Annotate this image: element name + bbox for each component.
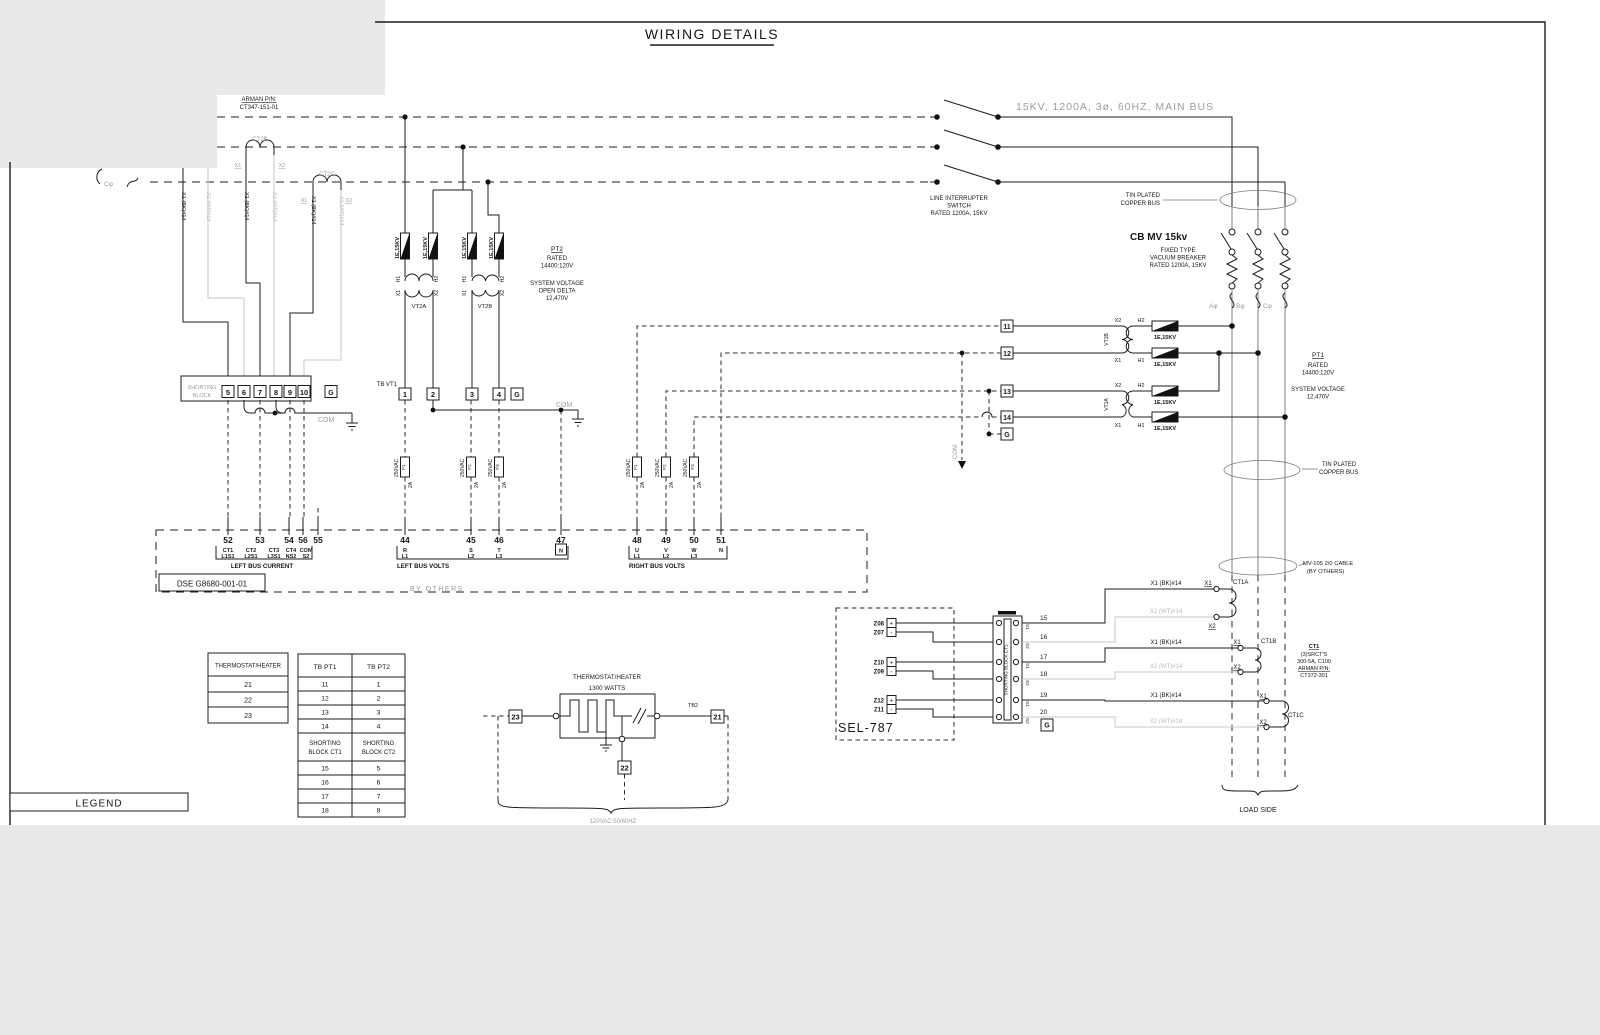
sb-term-10: 10: [300, 388, 308, 397]
pt1-term-14: 14: [1003, 415, 1011, 422]
c-phase-label: Cφ: [104, 181, 113, 188]
sel-17: 17: [1040, 654, 1048, 661]
tin-plated-mid-2: COPPER BUS: [1319, 470, 1358, 476]
arman-pn-value: CT347-151-01: [240, 105, 279, 111]
th-term-23: 23: [511, 713, 519, 722]
f3r-vac: 250VAC: [683, 458, 689, 477]
tb-r5b: 5: [377, 766, 381, 773]
sel-minus-3: -: [891, 708, 893, 714]
sb-term-8: 8: [274, 388, 278, 397]
term-49: 49: [661, 535, 671, 545]
vt2b-x2: X2: [500, 290, 506, 296]
ct2c-label: CT2C: [319, 172, 335, 178]
left-bus-volts-title: LEFT BUS VOLTS: [397, 563, 449, 570]
tb-r7a: 17: [321, 794, 329, 801]
term-51: 51: [716, 535, 726, 545]
sel-ground: G: [1044, 723, 1050, 730]
dse-number: DSE G8680-001-01: [177, 580, 248, 589]
term-50: 50: [689, 535, 699, 545]
pt1-rated: RATED: [1308, 363, 1329, 369]
tb-r3b: 3: [377, 710, 381, 717]
sel-s2-3: S2: [1025, 718, 1030, 724]
pt2-fuse-3: 1E,15KV: [462, 237, 468, 259]
vt2b-x1: X1: [462, 290, 468, 296]
pt1-sys2: 12,470V: [1307, 395, 1329, 401]
sel-strip-label: SHORTING BLOCK CT1: [1004, 644, 1009, 695]
sb-term-7: 7: [258, 388, 262, 397]
f3r-name: F3: [690, 464, 695, 470]
vt1b-x1: X1: [1115, 358, 1122, 364]
ct2c-x1: X1: [301, 198, 308, 204]
sel-z12: Z12: [874, 699, 885, 705]
sel-minus-1: -: [891, 631, 893, 637]
term-56: 56: [298, 535, 308, 545]
lbv-l3: L3: [496, 554, 502, 560]
rbv-l2: L2: [663, 554, 669, 560]
vt2a-x1: X1: [396, 290, 402, 296]
thermostat-name: THERMOSTAT/HEATER: [573, 674, 642, 681]
sel-s1-3: S1: [1025, 701, 1030, 707]
f1r-name: F1: [633, 464, 638, 470]
f3l-vac: 250VAC: [488, 458, 494, 477]
gray-mask-top-left: [0, 0, 385, 95]
ct2b-x1: X1: [235, 163, 242, 169]
pt1-sys1: SYSTEM VOLTAGE: [1291, 387, 1345, 393]
tb-vt1-label: TB VT1: [377, 382, 398, 388]
tb-h1: TB PT1: [313, 664, 336, 671]
rbv-l3: L3: [691, 554, 697, 560]
shorting-block-label-2: BLOCK: [193, 393, 212, 399]
vt2a-x2: X2: [434, 290, 440, 296]
vt2a-label: VT2A: [412, 304, 427, 310]
pt2-sys1: SYSTEM VOLTAGE: [530, 281, 584, 287]
sel-s2-1: S2: [1025, 643, 1030, 649]
ct1c-x2: X2: [1259, 720, 1267, 726]
sel-z08: Z08: [874, 622, 885, 628]
sb-term-9: 9: [288, 388, 292, 397]
ct1c-x1: X1: [1259, 694, 1267, 700]
sel-z09: Z09: [874, 670, 885, 676]
pt2-fuse-2: 1E,15KV: [423, 237, 429, 259]
tb-sb2b: BLOCK CT2: [362, 750, 396, 756]
term-55: 55: [313, 535, 323, 545]
pt2-sys2: OPEN DELTA: [538, 289, 575, 295]
wiring-diagram: WIRING DETAILS ARMAN P/N: CT347-151-01 C…: [0, 0, 1600, 1035]
sel-19: 19: [1040, 692, 1048, 699]
tin-plated-top-2: COPPER BUS: [1121, 201, 1160, 207]
sel-plus-1: +: [890, 622, 894, 628]
vt2b-label: VT2B: [478, 304, 493, 310]
main-bus-label: 15KV, 1200A, 3ø, 60HZ, MAIN BUS: [1016, 101, 1214, 113]
wiring-details-page: WIRING DETAILS ARMAN P/N: CT347-151-01 C…: [0, 0, 1600, 1035]
vt2b-h2: H2: [500, 276, 506, 283]
f2r-name: F2: [662, 464, 667, 470]
f2r-amp: 2A: [669, 481, 675, 488]
left-bus-current-title: LEFT BUS CURRENT: [231, 563, 293, 570]
tb-r2a: 12: [321, 696, 329, 703]
gray-mask-bottom: [0, 825, 1600, 1035]
tb2-label: TB2: [688, 703, 698, 709]
tbvt1-2: 2: [431, 390, 435, 399]
tt-22: 22: [244, 698, 252, 705]
wire-label-wt-3: X2 (WT)#14: [338, 196, 344, 226]
tt-header: THERMOSTAT/HEATER: [215, 664, 282, 670]
tbvt1-g: G: [514, 392, 520, 399]
tb-pt-table: [298, 654, 405, 817]
term-47: 47: [556, 535, 566, 545]
right-bus-volts-title: RIGHT BUS VOLTS: [629, 563, 685, 570]
lbv-l1: L1: [402, 554, 408, 560]
pt1-name: PT1: [1312, 352, 1324, 359]
ctw-bk-3: X1 (BK)#14: [1150, 693, 1182, 699]
vt1a-x2: X2: [1115, 383, 1122, 389]
f2r-vac: 250VAC: [655, 458, 661, 477]
vt1a-h2: H2: [1137, 383, 1144, 389]
lbc-l3s1: L3S1: [267, 554, 280, 560]
tb-sb1b: BLOCK CT1: [308, 750, 342, 756]
ct2c-x2: X2: [346, 198, 353, 204]
vt2b-h1: H1: [462, 276, 468, 283]
cb-line-3: RATED 1200A, 15KV: [1150, 263, 1207, 269]
ctw-bk-1: X1 (BK)#14: [1150, 581, 1182, 587]
by-others-label: BY OTHERS: [410, 586, 464, 593]
lbc-s2: S2: [303, 554, 310, 560]
sel-s1-2: S1: [1025, 663, 1030, 669]
pt2-sys3: 12,470V: [546, 296, 568, 302]
tt-23: 23: [244, 713, 252, 720]
phase-c-label: Cφ: [1263, 303, 1272, 310]
vt2a-h2: H2: [434, 276, 440, 283]
tb-r6b: 6: [377, 780, 381, 787]
wire-label-bk-3: X1 (BK)#14: [310, 196, 316, 224]
shorting-block-label-1: SHORTING: [188, 385, 217, 391]
pt1-fuse-3: 1E,15KV: [1154, 400, 1176, 406]
lbc-ns2: NS2: [286, 554, 297, 560]
sel-s1-1: S1: [1025, 624, 1030, 630]
phase-b-label: Bφ: [1236, 303, 1245, 310]
tin-plated-mid-1: TIN PLATED: [1322, 462, 1357, 468]
wire-label-bk-2: X1 (BK)#14: [243, 192, 249, 220]
rbv-n: N: [719, 548, 723, 554]
phase-a-label: Aφ: [1209, 303, 1218, 310]
page-title: WIRING DETAILS: [645, 26, 779, 42]
legend-label: LEGEND: [75, 799, 122, 810]
mv-cable-2: (BY OTHERS): [1307, 569, 1344, 575]
tin-plated-top-1: TIN PLATED: [1126, 193, 1161, 199]
tb-h2: TB PT2: [367, 664, 390, 671]
f2l-name: F2: [467, 464, 472, 470]
tb-r1a: 11: [321, 682, 328, 689]
thermostat-watts: 1300 WATTS: [589, 685, 625, 692]
term-45: 45: [466, 535, 476, 545]
lbc-l2s1: L2S1: [244, 554, 257, 560]
pt2-fuse-4: 1E,15KV: [489, 237, 495, 259]
f1r-vac: 250VAC: [626, 458, 632, 477]
ctw-wt-2: X2 (WT)#14: [1150, 664, 1183, 670]
pt1-fuse-4: 1E,15KV: [1154, 426, 1176, 432]
sel-z07: Z07: [874, 631, 885, 637]
pt1-fuse-1: 1E,15KV: [1154, 335, 1176, 341]
term-44: 44: [400, 535, 410, 545]
vt1a-h1: H1: [1137, 423, 1144, 429]
f1l-vac: 250VAC: [394, 458, 400, 477]
sb-term-5: 5: [226, 388, 230, 397]
vt1b-h1: H1: [1137, 358, 1144, 364]
tb-r8a: 18: [321, 808, 329, 815]
com-label-mid: COM: [556, 402, 573, 409]
f3l-amp: 2A: [502, 481, 508, 488]
wire-label-wt-1: X2 (WT)#14: [205, 192, 211, 222]
sel-16: 16: [1040, 634, 1048, 641]
tbvt1-1: 1: [403, 390, 407, 399]
pt2-fuse-1: 1E,15KV: [395, 237, 401, 259]
pt1-term-13: 13: [1003, 389, 1011, 396]
thermostat-voltage: 120VAC 50/60HZ: [590, 819, 637, 825]
th-term-22: 22: [620, 764, 628, 773]
f2l-amp: 2A: [474, 481, 480, 488]
ct1-name: CT1: [1309, 644, 1319, 650]
sel-minus-2: -: [891, 670, 893, 676]
cb-mv-label: CB MV 15kv: [1130, 232, 1188, 243]
f3r-amp: 2A: [697, 481, 703, 488]
tb-r7b: 7: [377, 794, 381, 801]
ct2b-x2: X2: [279, 163, 286, 169]
f1l-amp: 2A: [408, 481, 414, 488]
pt1-ground: G: [1004, 432, 1010, 439]
sb-ground: G: [328, 390, 334, 397]
pt1-ratio: 14400:120V: [1302, 371, 1334, 377]
ctw-bk-2: X1 (BK)#14: [1150, 640, 1182, 646]
tb-r3a: 13: [321, 710, 329, 717]
lbc-l1s1: L1S1: [221, 554, 234, 560]
tb-r2b: 2: [377, 696, 381, 703]
ct1a-x2: X2: [1208, 624, 1216, 630]
ct1b-x1: X1: [1233, 640, 1241, 646]
sel-z10: Z10: [874, 661, 885, 667]
th-term-21: 21: [713, 713, 721, 722]
lbv-n: N: [559, 549, 563, 555]
vt1b-h2: H2: [1137, 318, 1144, 324]
sel-s2-2: S2: [1025, 680, 1030, 686]
rbv-l1: L1: [634, 554, 640, 560]
term-48: 48: [632, 535, 642, 545]
sel787-name: SEL-787: [838, 721, 894, 735]
vt1b-x2: X2: [1115, 318, 1122, 324]
pt2-rated: RATED: [547, 256, 568, 262]
wire-label-bk-1: X1 (BK)#14: [180, 192, 186, 220]
term-52: 52: [223, 535, 233, 545]
cb-line-2: VACUUM BREAKER: [1150, 256, 1207, 262]
ct1c-label: CT1C: [1288, 713, 1304, 719]
com-label-left: COM: [318, 417, 335, 424]
lis-2: SWITCH: [947, 204, 971, 210]
sel-plus-3: +: [890, 699, 894, 705]
wire-label-wt-2: X2 (WT)#14: [271, 192, 277, 222]
f1l-name: F1: [401, 464, 406, 470]
tb-r6a: 16: [321, 780, 329, 787]
vt2a-h1: H1: [396, 276, 402, 283]
sb-term-6: 6: [242, 388, 246, 397]
ctw-wt-3: X2 (WT)#14: [1150, 719, 1183, 725]
tbvt1-3: 3: [470, 390, 474, 399]
ct1-l2: 300-5A, C100: [1297, 659, 1331, 665]
ct1-l1: (3)SRCT'S: [1301, 652, 1328, 658]
ct1a-label: CT1A: [1233, 580, 1248, 586]
tb-sb1a: SHORTING: [309, 741, 341, 747]
pt1-fuse-2: 1E,15KV: [1154, 362, 1176, 368]
ct1-l4: CT372-301: [1300, 673, 1328, 679]
sel-15: 15: [1040, 615, 1048, 622]
term-53: 53: [255, 535, 265, 545]
cb-line-1: FIXED TYPE: [1161, 248, 1196, 254]
tb-r5a: 15: [321, 766, 329, 773]
f3l-name: F3: [495, 464, 500, 470]
lis-3: RATED 1200A, 15KV: [931, 211, 988, 217]
sel-18: 18: [1040, 671, 1048, 678]
ct1b-x2: X2: [1233, 665, 1241, 671]
vt1b-label: VT1B: [1104, 333, 1110, 346]
tt-21: 21: [244, 682, 252, 689]
term-46: 46: [494, 535, 504, 545]
vt1a-label: VT1A: [1104, 398, 1110, 411]
ct1-l3: ARMAN P/N:: [1298, 666, 1331, 672]
pt2-ratio: 14400:120V: [541, 264, 573, 270]
gray-mask-step: [0, 94, 217, 168]
arman-pn-label: ARMAN P/N:: [241, 97, 276, 103]
sel-20: 20: [1040, 709, 1048, 716]
pt1-term-12: 12: [1003, 351, 1011, 358]
tb-r1b: 1: [377, 682, 381, 689]
mv-cable-1: MV-105 2/0 CABLE: [1303, 561, 1353, 567]
load-side-label: LOAD SIDE: [1239, 807, 1277, 814]
tb-r4a: 14: [321, 724, 329, 731]
ct1b-label: CT1B: [1261, 639, 1276, 645]
ctw-wt-1: X2 (WT)#14: [1150, 609, 1183, 615]
tb-r4b: 4: [377, 724, 381, 731]
sel-plus-2: +: [890, 661, 894, 667]
lbv-l2: L2: [468, 554, 474, 560]
ct2b-label: CT2B: [252, 137, 267, 143]
pt2-name: PT2: [551, 246, 563, 253]
f1r-amp: 2A: [640, 481, 646, 488]
tb-r8b: 8: [377, 808, 381, 815]
ct1a-x1: X1: [1204, 581, 1212, 587]
f2l-vac: 250VAC: [460, 458, 466, 477]
tb-sb2a: SHORTING: [363, 741, 395, 747]
com-label-right: COM: [953, 445, 959, 459]
lis-1: LINE INTERRUPTER: [930, 196, 988, 202]
pt1-term-11: 11: [1003, 324, 1011, 331]
sel-z11: Z11: [874, 708, 885, 714]
term-54: 54: [284, 535, 294, 545]
vt1a-x1: X1: [1115, 423, 1122, 429]
